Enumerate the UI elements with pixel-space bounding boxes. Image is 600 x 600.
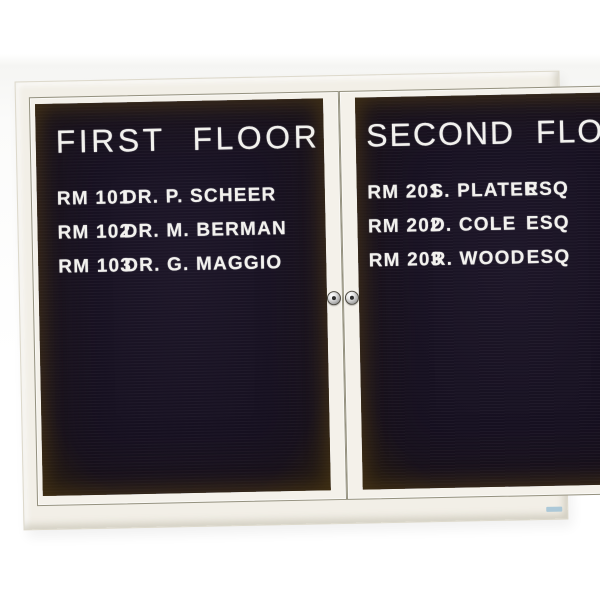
keyhole-icon [332, 296, 336, 300]
right-door: SECOND FLOOR RM 201 S. PLATER ESQ RM 202… [339, 84, 600, 499]
room-cell: RM 202 [368, 216, 431, 237]
left-board-title: FIRST FLOOR [55, 120, 320, 157]
suffix-cell: ESQ [525, 179, 569, 200]
room-cell: RM 101 [57, 188, 123, 209]
directory-row: RM 203 R. WOOD ESQ [369, 246, 600, 272]
right-board-title: SECOND FLOOR [366, 114, 600, 152]
left-letter-panel: FIRST FLOOR RM 101 DR. P. SCHEER RM 102 … [35, 98, 331, 496]
room-cell: RM 102 [57, 222, 123, 243]
directory-row: RM 101 DR. P. SCHEER [57, 184, 322, 209]
left-door-lock-icon [327, 290, 341, 304]
doors-container: FIRST FLOOR RM 101 DR. P. SCHEER RM 102 … [29, 87, 551, 506]
directory-row: RM 202 D. COLE ESQ [368, 212, 600, 238]
name-cell: D. COLE [431, 214, 526, 236]
directory-row: RM 201 S. PLATER ESQ [367, 178, 600, 204]
left-door: FIRST FLOOR RM 101 DR. P. SCHEER RM 102 … [29, 91, 348, 506]
right-door-lock-icon [345, 290, 359, 304]
product-photo: FIRST FLOOR RM 101 DR. P. SCHEER RM 102 … [0, 0, 600, 600]
keyhole-icon [350, 295, 354, 299]
right-panel-content: SECOND FLOOR RM 201 S. PLATER ESQ RM 202… [355, 92, 600, 272]
name-cell: DR. G. MAGGIO [124, 253, 282, 276]
suffix-cell: ESQ [526, 213, 570, 234]
name-cell: DR. P. SCHEER [123, 185, 277, 208]
name-cell: S. PLATER [430, 180, 525, 202]
brand-label [546, 507, 562, 512]
room-cell: RM 103 [58, 256, 124, 277]
suffix-cell: ESQ [526, 247, 570, 268]
room-cell: RM 201 [367, 182, 430, 203]
name-cell: R. WOOD [432, 248, 527, 270]
right-directory-rows: RM 201 S. PLATER ESQ RM 202 D. COLE ESQ … [367, 178, 600, 272]
directory-row: RM 103 DR. G. MAGGIO [58, 252, 323, 277]
right-letter-panel: SECOND FLOOR RM 201 S. PLATER ESQ RM 202… [355, 92, 600, 490]
cabinet-frame: FIRST FLOOR RM 101 DR. P. SCHEER RM 102 … [15, 71, 569, 531]
room-cell: RM 203 [369, 250, 432, 271]
left-panel-content: FIRST FLOOR RM 101 DR. P. SCHEER RM 102 … [35, 98, 327, 278]
left-directory-rows: RM 101 DR. P. SCHEER RM 102 DR. M. BERMA… [57, 184, 323, 277]
name-cell: DR. M. BERMAN [123, 219, 287, 242]
directory-row: RM 102 DR. M. BERMAN [57, 218, 322, 243]
